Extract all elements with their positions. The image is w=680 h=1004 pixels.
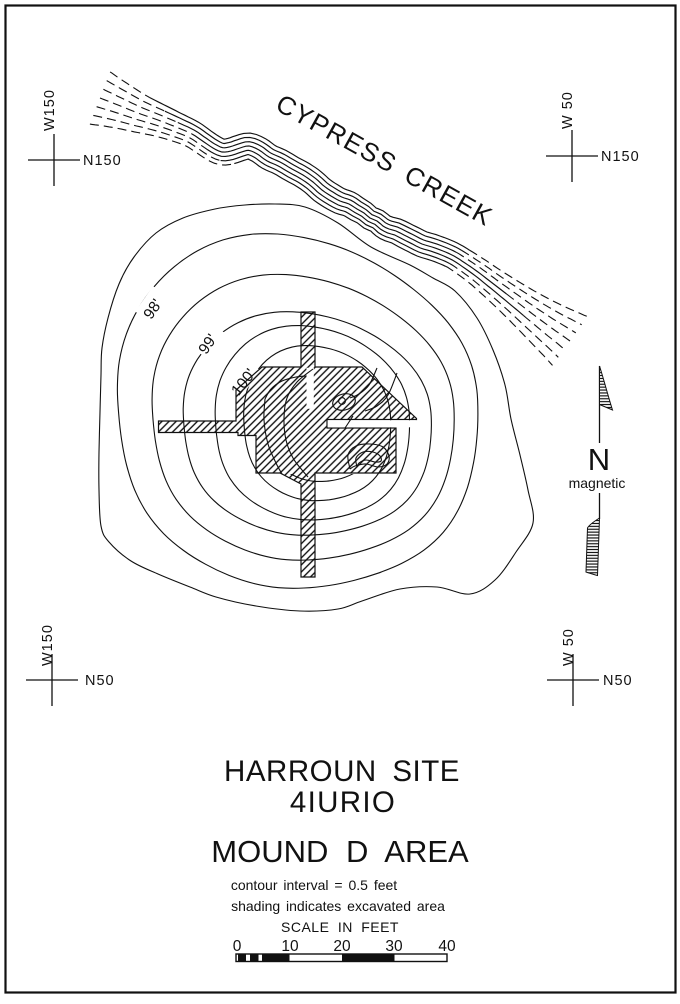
svg-text:10: 10 [281, 938, 299, 955]
svg-text:N50: N50 [85, 673, 115, 689]
svg-text:W150: W150 [40, 624, 56, 666]
svg-text:W 50: W 50 [560, 91, 576, 129]
svg-text:0: 0 [233, 938, 242, 955]
svg-text:20: 20 [333, 938, 351, 955]
svg-text:W150: W150 [42, 89, 58, 131]
svg-text:SCALE IN FEET: SCALE IN FEET [281, 919, 399, 935]
svg-text:HARROUN SITE: HARROUN SITE [224, 755, 460, 788]
svg-text:N50: N50 [603, 673, 633, 689]
svg-text:magnetic: magnetic [569, 475, 626, 491]
svg-text:N150: N150 [601, 149, 640, 165]
svg-text:MOUND D AREA: MOUND D AREA [211, 834, 469, 869]
svg-text:shading indicates excavated ar: shading indicates excavated area [231, 898, 445, 914]
svg-text:W 50: W 50 [561, 628, 577, 666]
svg-text:N: N [588, 442, 610, 477]
svg-text:40: 40 [438, 938, 456, 955]
svg-text:N150: N150 [83, 153, 122, 169]
svg-text:4IURIO: 4IURIO [290, 786, 396, 819]
svg-text:contour interval = 0.5 feet: contour interval = 0.5 feet [231, 877, 397, 893]
svg-text:30: 30 [385, 938, 403, 955]
